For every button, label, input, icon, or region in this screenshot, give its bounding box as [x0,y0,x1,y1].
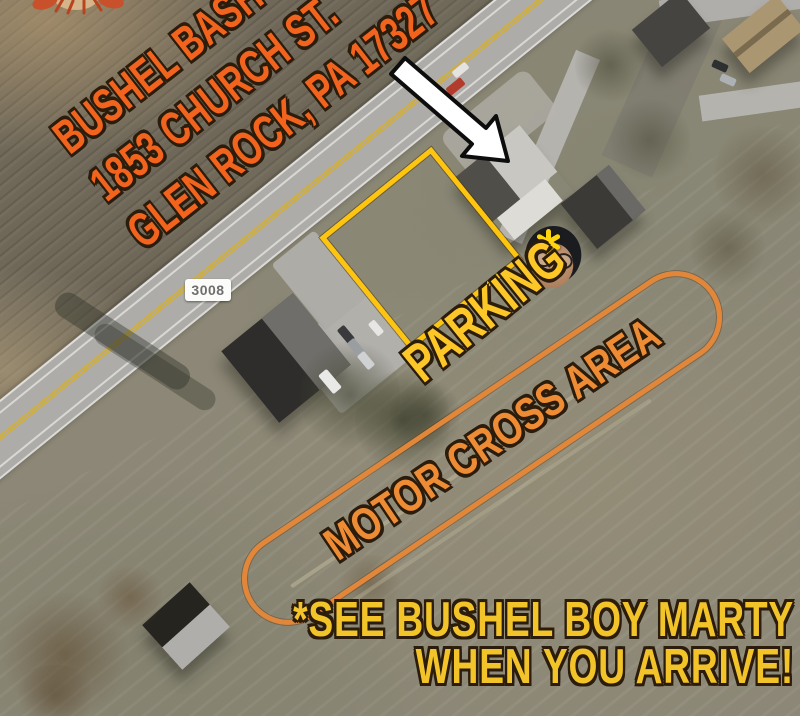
tree [610,95,690,185]
route-sign-number: 3008 [191,282,224,298]
tree [575,25,645,105]
note-line-1: *SEE BUSHEL BOY MARTY [293,597,794,644]
tree [690,205,765,290]
arrival-note: *SEE BUSHEL BOY MARTY WHEN YOU ARRIVE! [293,597,794,691]
brush-pile [10,665,100,716]
arrow-icon [383,56,523,176]
crawfish-icon [18,0,138,22]
route-sign-3008: 3008 [185,279,231,301]
note-line-2: WHEN YOU ARRIVE! [293,644,794,691]
satellite-map-flyer: 3008 BUSHEL BASH V 1853 CHURCH ST. GLEN … [0,0,800,716]
brush-pile [95,565,165,630]
